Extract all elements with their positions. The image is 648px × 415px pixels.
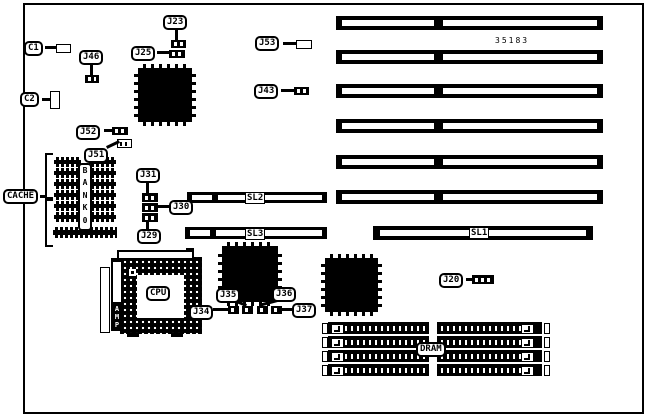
label-j46: J46 bbox=[79, 50, 103, 65]
jumper-j25 bbox=[169, 50, 185, 58]
label-j43: J43 bbox=[254, 84, 278, 99]
cache-chip bbox=[89, 190, 116, 200]
label-cpu: CPU bbox=[146, 286, 170, 301]
simm-socket-4 bbox=[322, 364, 548, 376]
simm-end-tab bbox=[544, 337, 550, 348]
simm-key-notch bbox=[429, 364, 437, 376]
pointer-c2 bbox=[42, 98, 51, 101]
slot-contact-strip bbox=[342, 159, 434, 165]
qfp-chip-right bbox=[325, 258, 378, 312]
cache-chip bbox=[54, 157, 81, 167]
simm-end-tab bbox=[322, 323, 328, 334]
pointer-j30 bbox=[156, 205, 170, 208]
label-j34: J34 bbox=[189, 305, 213, 320]
jumper-j43 bbox=[294, 87, 309, 95]
label-j51: J51 bbox=[84, 148, 108, 163]
label-j36: J36 bbox=[272, 287, 296, 302]
slot-contact-strip bbox=[342, 194, 434, 200]
label-j53: J53 bbox=[255, 36, 279, 51]
pointer-j43 bbox=[281, 89, 295, 92]
cache-chip bbox=[54, 190, 81, 200]
label-j30: J30 bbox=[169, 200, 193, 215]
simm-end-tab bbox=[322, 337, 328, 348]
latch-hook bbox=[524, 340, 530, 346]
latch-hook bbox=[334, 326, 340, 332]
slot-contact-strip bbox=[443, 20, 597, 26]
cache-chip bbox=[54, 168, 81, 178]
slot-label-sl3: SL3 bbox=[245, 228, 265, 240]
simm-latch bbox=[521, 366, 534, 376]
pointer-cache bbox=[40, 195, 47, 198]
simm-latch bbox=[331, 324, 344, 334]
isa-slot-6 bbox=[336, 190, 603, 204]
isa-slot-4 bbox=[336, 119, 603, 133]
label-j20: J20 bbox=[439, 273, 463, 288]
pointer-j52 bbox=[104, 129, 113, 132]
label-j35: J35 bbox=[216, 288, 240, 303]
label-j25: J25 bbox=[131, 46, 155, 61]
jumper-j46 bbox=[85, 75, 99, 83]
cache-chip bbox=[89, 201, 116, 211]
jumper-j29 bbox=[142, 213, 158, 222]
label-j31: J31 bbox=[136, 168, 160, 183]
simm-socket-1 bbox=[322, 322, 548, 334]
slot-contact-strip bbox=[342, 123, 434, 129]
motherboard-diagram: 35183 SL2 SL3 SL1 C1 C2 J46 J23 J25 J53 … bbox=[0, 0, 648, 415]
simm-end-tab bbox=[322, 351, 328, 362]
label-j29: J29 bbox=[137, 229, 161, 244]
simm-latch bbox=[331, 338, 344, 348]
slot-label-sl2: SL2 bbox=[245, 192, 265, 204]
label-cache: CACHE bbox=[3, 189, 38, 204]
latch-hook bbox=[524, 326, 530, 332]
capacitor-c1 bbox=[56, 44, 71, 53]
isa-slot-2 bbox=[336, 50, 603, 64]
pointer-j53 bbox=[283, 42, 297, 45]
qfp-chip-top bbox=[138, 68, 192, 122]
slot-contact-strip bbox=[443, 194, 597, 200]
cache-bracket-lower bbox=[45, 199, 53, 247]
latch-hook bbox=[334, 340, 340, 346]
slot-key-notch bbox=[210, 230, 216, 236]
slot-contact-strip bbox=[443, 123, 597, 129]
header-j53 bbox=[296, 40, 312, 49]
latch-hook bbox=[334, 368, 340, 374]
cache-chip bbox=[54, 212, 81, 222]
regulator-outline bbox=[100, 267, 110, 333]
slot-contact-strip bbox=[443, 88, 597, 94]
capacitor-c2 bbox=[50, 91, 60, 109]
cpu-retention-bar bbox=[117, 250, 194, 260]
latch-hook bbox=[524, 368, 530, 374]
simm-end-tab bbox=[322, 365, 328, 376]
latch-hook bbox=[334, 354, 340, 360]
label-c2: C2 bbox=[20, 92, 39, 107]
simm-end-tab bbox=[544, 351, 550, 362]
simm-latch bbox=[521, 352, 534, 362]
simm-end-tab bbox=[544, 323, 550, 334]
cache-chip bbox=[89, 179, 116, 189]
simm-latch bbox=[331, 352, 344, 362]
simm-key-notch bbox=[429, 322, 437, 334]
slot-label-sl1: SL1 bbox=[469, 227, 489, 239]
jumper-j35 bbox=[242, 306, 253, 314]
label-dram: DRAM bbox=[416, 342, 446, 357]
label-j52: J52 bbox=[76, 125, 100, 140]
amp-regulator: AMP bbox=[111, 258, 123, 331]
jumper-j23 bbox=[171, 40, 186, 48]
cache-chip bbox=[54, 201, 81, 211]
jumper-j34 bbox=[228, 306, 239, 314]
pointer-j20 bbox=[466, 278, 473, 281]
simm-latch bbox=[521, 324, 534, 334]
isa-slot-1 bbox=[336, 16, 603, 30]
bank0-label: BANK0 bbox=[78, 163, 92, 231]
jumper-j31 bbox=[142, 193, 158, 202]
cache-chip bbox=[89, 168, 116, 178]
amp-label: AMP bbox=[111, 305, 123, 329]
simm-latch bbox=[331, 366, 344, 376]
slot-contact-strip bbox=[342, 54, 434, 60]
slot-contact-strip bbox=[342, 20, 434, 26]
slot-key-notch bbox=[212, 195, 218, 200]
cache-chip bbox=[89, 212, 116, 222]
pointer-j25 bbox=[157, 51, 170, 54]
pointer-j34 bbox=[213, 308, 229, 311]
label-c1: C1 bbox=[24, 41, 43, 56]
board-number: 35183 bbox=[495, 36, 529, 45]
amp-regulator-window bbox=[113, 262, 121, 302]
pointer-c1 bbox=[45, 46, 56, 49]
cpu-socket-tab bbox=[127, 333, 139, 337]
slot-contact-strip bbox=[342, 88, 434, 94]
cpu-socket-tab bbox=[171, 333, 183, 337]
slot-contact-strip bbox=[443, 159, 597, 165]
label-j23: J23 bbox=[163, 15, 187, 30]
isa-slot-5 bbox=[336, 155, 603, 169]
isa-slot-3 bbox=[336, 84, 603, 98]
cpu-pin1-dot bbox=[131, 271, 134, 274]
jumper-j36 bbox=[257, 306, 268, 314]
label-j37: J37 bbox=[292, 303, 316, 318]
jumper-j20 bbox=[472, 275, 494, 284]
cache-chip bbox=[54, 179, 81, 189]
slot-contact-strip bbox=[443, 54, 597, 60]
simm-end-tab bbox=[544, 365, 550, 376]
jumper-j52 bbox=[112, 127, 128, 135]
simm-latch bbox=[521, 338, 534, 348]
latch-hook bbox=[524, 354, 530, 360]
cache-bracket-upper bbox=[45, 153, 53, 199]
